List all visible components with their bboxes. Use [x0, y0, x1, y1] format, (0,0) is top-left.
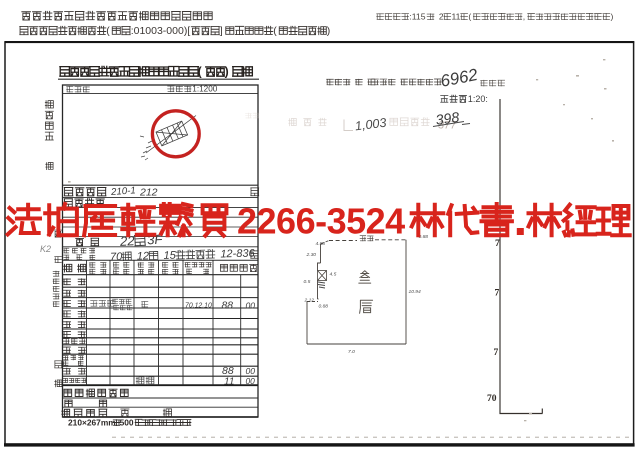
- svg-text:(: (: [106, 25, 110, 37]
- svg-text:0.5: 0.5: [304, 279, 311, 285]
- svg-text:210-1: 210-1: [110, 185, 136, 198]
- svg-text:4.5: 4.5: [330, 272, 337, 278]
- svg-text:7: 7: [495, 289, 500, 299]
- svg-text:11: 11: [224, 377, 234, 388]
- svg-text:11: 11: [452, 12, 461, 22]
- svg-text:K2: K2: [40, 244, 51, 254]
- svg-text:): ): [611, 12, 614, 22]
- svg-text:7: 7: [494, 348, 499, 358]
- svg-text:): ): [225, 65, 229, 79]
- svg-text:212: 212: [139, 187, 158, 199]
- svg-text:1:20:: 1:20:: [468, 94, 488, 104]
- svg-text:88: 88: [222, 365, 234, 377]
- svg-text:4.88: 4.88: [316, 241, 326, 247]
- svg-text:7.0: 7.0: [348, 349, 355, 355]
- svg-text:0.88: 0.88: [319, 303, 329, 309]
- svg-text:12: 12: [137, 250, 150, 262]
- svg-text:70: 70: [110, 251, 123, 263]
- svg-text:): ): [327, 25, 331, 37]
- svg-text:88: 88: [222, 300, 234, 311]
- svg-text:12-836: 12-836: [220, 248, 255, 261]
- svg-text:1:1200: 1:1200: [192, 85, 217, 94]
- svg-text:10.94: 10.94: [409, 289, 422, 295]
- svg-text:2.30: 2.30: [306, 252, 317, 258]
- svg-text::115: :115: [409, 12, 425, 22]
- svg-text:00: 00: [246, 301, 256, 311]
- svg-text:2: 2: [439, 12, 444, 22]
- svg-text:2266-3524: 2266-3524: [237, 201, 405, 242]
- svg-text:2.12: 2.12: [304, 297, 315, 303]
- svg-text:,: ,: [523, 12, 525, 22]
- svg-text:(: (: [468, 12, 471, 22]
- svg-text::01003-000)[: :01003-000)[: [131, 25, 191, 37]
- svg-text:70.12.10: 70.12.10: [185, 303, 212, 310]
- svg-text:00: 00: [246, 376, 256, 386]
- svg-text:]: ]: [220, 25, 223, 37]
- svg-text:210×267mm: 210×267mm: [68, 417, 116, 427]
- svg-text:00: 00: [246, 366, 256, 376]
- svg-text:7: 7: [495, 239, 500, 249]
- svg-text:500: 500: [120, 417, 134, 427]
- svg-text:70: 70: [487, 394, 497, 404]
- svg-text:(: (: [273, 25, 277, 37]
